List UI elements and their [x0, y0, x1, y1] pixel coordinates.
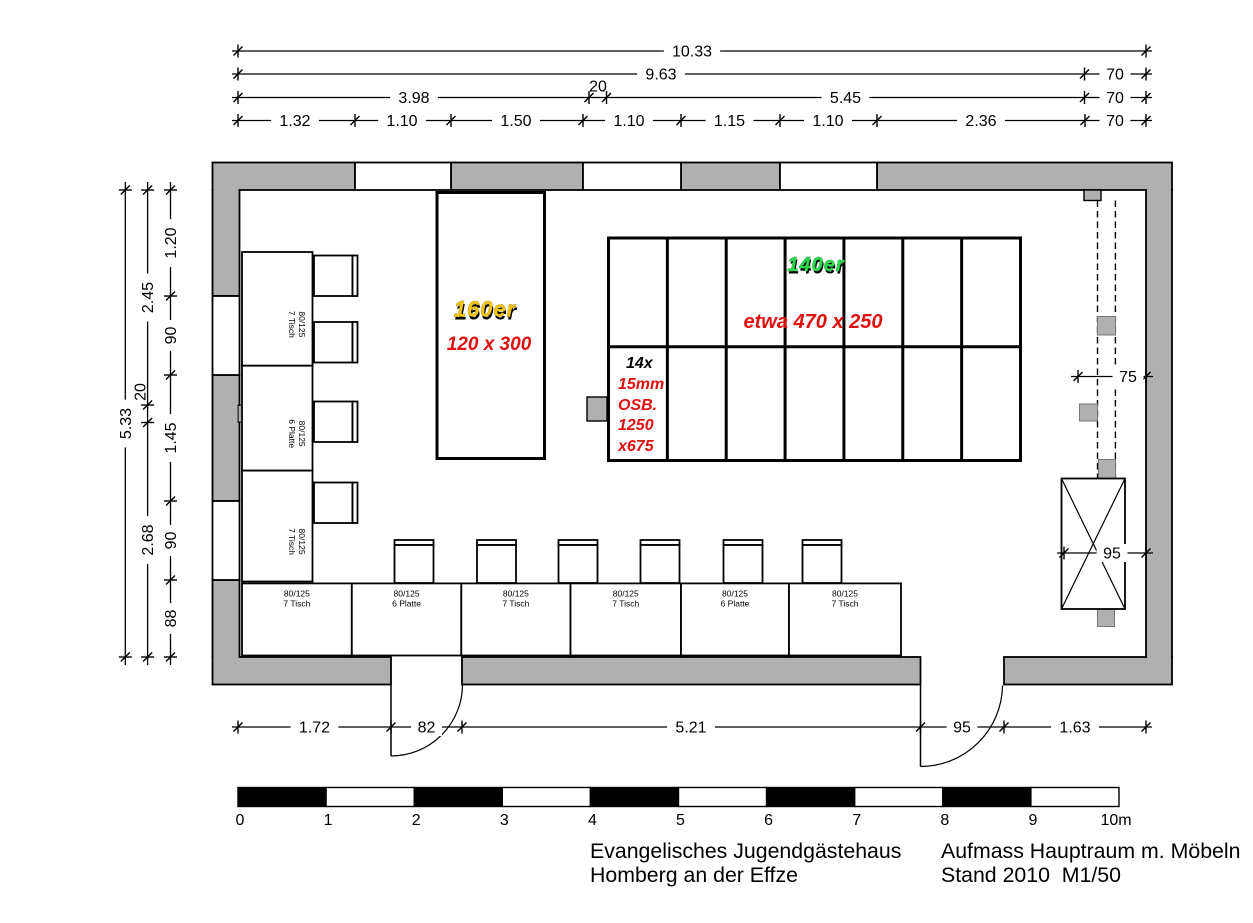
svg-text:1.10: 1.10: [812, 113, 843, 130]
svg-text:Homberg an der Effze: Homberg an der Effze: [590, 863, 798, 887]
svg-text:10m: 10m: [1100, 812, 1131, 829]
svg-text:5.21: 5.21: [675, 720, 706, 737]
svg-text:7 Tisch: 7 Tisch: [283, 598, 310, 608]
svg-text:2: 2: [412, 812, 421, 829]
svg-text:160er: 160er: [454, 297, 517, 322]
svg-text:80/125: 80/125: [503, 588, 529, 598]
svg-text:6 Platte: 6 Platte: [392, 598, 421, 608]
svg-text:20: 20: [133, 383, 150, 401]
svg-text:1.50: 1.50: [500, 113, 531, 130]
svg-text:95: 95: [1103, 546, 1121, 563]
svg-text:1.10: 1.10: [613, 113, 644, 130]
svg-text:3.98: 3.98: [398, 90, 429, 107]
svg-text:5.45: 5.45: [830, 90, 861, 107]
svg-text:7 Tisch: 7 Tisch: [832, 598, 859, 608]
svg-text:9: 9: [1028, 812, 1037, 829]
svg-text:80/125: 80/125: [297, 529, 307, 555]
svg-text:1.20: 1.20: [163, 227, 180, 258]
svg-text:6 Platte: 6 Platte: [721, 598, 750, 608]
svg-text:7 Tisch: 7 Tisch: [612, 598, 639, 608]
svg-text:1: 1: [324, 812, 333, 829]
svg-text:1.15: 1.15: [714, 113, 745, 130]
svg-text:1.45: 1.45: [163, 422, 180, 453]
svg-text:1250: 1250: [618, 417, 654, 434]
svg-text:3: 3: [500, 812, 509, 829]
svg-text:4: 4: [588, 812, 597, 829]
svg-text:120 x 300: 120 x 300: [447, 334, 532, 355]
svg-text:90: 90: [163, 532, 180, 550]
svg-text:Aufmass Hauptraum m. Möbeln: Aufmass Hauptraum m. Möbeln: [941, 839, 1240, 863]
svg-text:75: 75: [1119, 369, 1137, 386]
svg-text:80/125: 80/125: [297, 421, 307, 447]
svg-text:8: 8: [940, 812, 949, 829]
svg-text:9.63: 9.63: [645, 67, 676, 84]
svg-text:6: 6: [764, 812, 773, 829]
svg-text:1.63: 1.63: [1059, 720, 1090, 737]
svg-text:6 Platte: 6 Platte: [287, 419, 297, 448]
svg-text:1.10: 1.10: [386, 113, 417, 130]
svg-text:5: 5: [676, 812, 685, 829]
svg-text:1.32: 1.32: [279, 113, 310, 130]
svg-text:80/125: 80/125: [832, 588, 858, 598]
svg-text:80/125: 80/125: [613, 588, 639, 598]
svg-text:7 Tisch: 7 Tisch: [502, 598, 529, 608]
svg-text:90: 90: [163, 327, 180, 345]
svg-text:5.33: 5.33: [118, 408, 135, 439]
svg-text:7 Tisch: 7 Tisch: [287, 528, 297, 555]
svg-text:88: 88: [163, 610, 180, 628]
svg-text:7: 7: [852, 812, 861, 829]
svg-text:1.72: 1.72: [299, 720, 330, 737]
svg-text:80/125: 80/125: [297, 311, 307, 337]
svg-text:70: 70: [1106, 67, 1124, 84]
svg-text:OSB.: OSB.: [618, 397, 657, 414]
svg-text:2.68: 2.68: [140, 524, 157, 555]
svg-text:x675: x675: [617, 438, 655, 455]
svg-text:14x: 14x: [626, 355, 654, 372]
svg-text:Evangelisches Jugendgästehaus: Evangelisches Jugendgästehaus: [590, 839, 901, 863]
svg-text:80/125: 80/125: [722, 588, 748, 598]
svg-text:etwa 470 x 250: etwa 470 x 250: [744, 311, 883, 333]
svg-text:70: 70: [1106, 113, 1124, 130]
svg-text:2.45: 2.45: [140, 282, 157, 313]
svg-text:15mm: 15mm: [618, 376, 664, 393]
svg-text:2.36: 2.36: [965, 113, 996, 130]
svg-text:140er: 140er: [787, 254, 844, 276]
svg-text:20: 20: [589, 79, 607, 96]
svg-text:82: 82: [418, 720, 436, 737]
svg-text:95: 95: [953, 720, 971, 737]
svg-text:Stand 2010 M1/50: Stand 2010 M1/50: [941, 863, 1121, 887]
svg-text:10.33: 10.33: [672, 44, 712, 61]
svg-text:7 Tisch: 7 Tisch: [287, 311, 297, 338]
svg-text:80/125: 80/125: [284, 588, 310, 598]
svg-text:80/125: 80/125: [394, 588, 420, 598]
svg-text:0: 0: [236, 812, 245, 829]
svg-text:70: 70: [1106, 90, 1124, 107]
